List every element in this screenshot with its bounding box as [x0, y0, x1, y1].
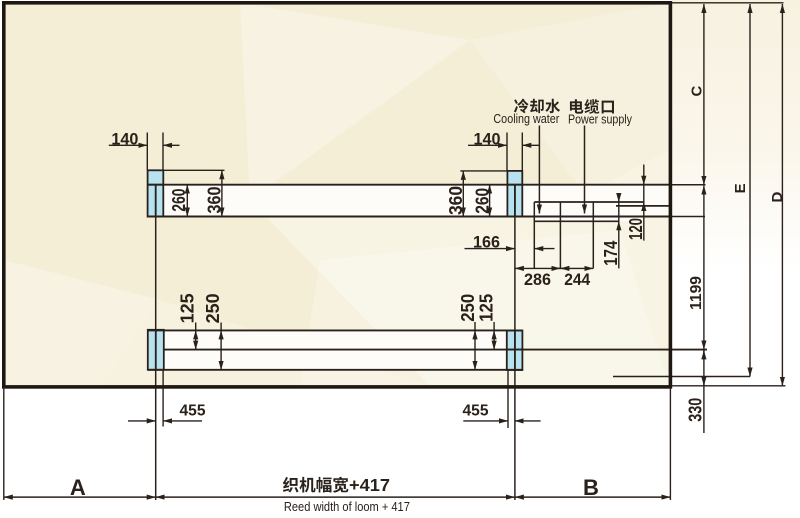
svg-text:260: 260	[472, 188, 493, 214]
svg-text:455: 455	[180, 403, 206, 420]
svg-text:1199: 1199	[688, 276, 705, 310]
svg-text:A: A	[70, 475, 86, 500]
svg-text:C: C	[689, 86, 706, 97]
svg-text:330: 330	[684, 398, 705, 422]
svg-text:D: D	[769, 192, 786, 203]
svg-text:B: B	[583, 475, 599, 500]
svg-text:+417: +417	[349, 475, 390, 495]
svg-text:455: 455	[463, 403, 489, 420]
svg-text:174: 174	[600, 240, 621, 266]
svg-text:Power supply: Power supply	[568, 113, 633, 127]
svg-text:286: 286	[524, 270, 551, 289]
svg-text:Reed width of loom + 417: Reed width of loom + 417	[284, 499, 410, 514]
svg-text:360: 360	[203, 187, 224, 214]
svg-text:244: 244	[564, 270, 590, 289]
svg-text:140: 140	[474, 129, 501, 148]
svg-text:250: 250	[202, 293, 223, 323]
svg-text:140: 140	[111, 129, 138, 148]
svg-text:120: 120	[625, 218, 646, 240]
svg-text:166: 166	[473, 232, 500, 251]
svg-text:125: 125	[177, 293, 198, 323]
svg-text:260: 260	[168, 189, 189, 212]
svg-text:E: E	[732, 183, 749, 193]
svg-text:125: 125	[476, 294, 497, 322]
svg-text:Cooling water: Cooling water	[493, 112, 559, 126]
svg-text:360: 360	[445, 186, 466, 215]
